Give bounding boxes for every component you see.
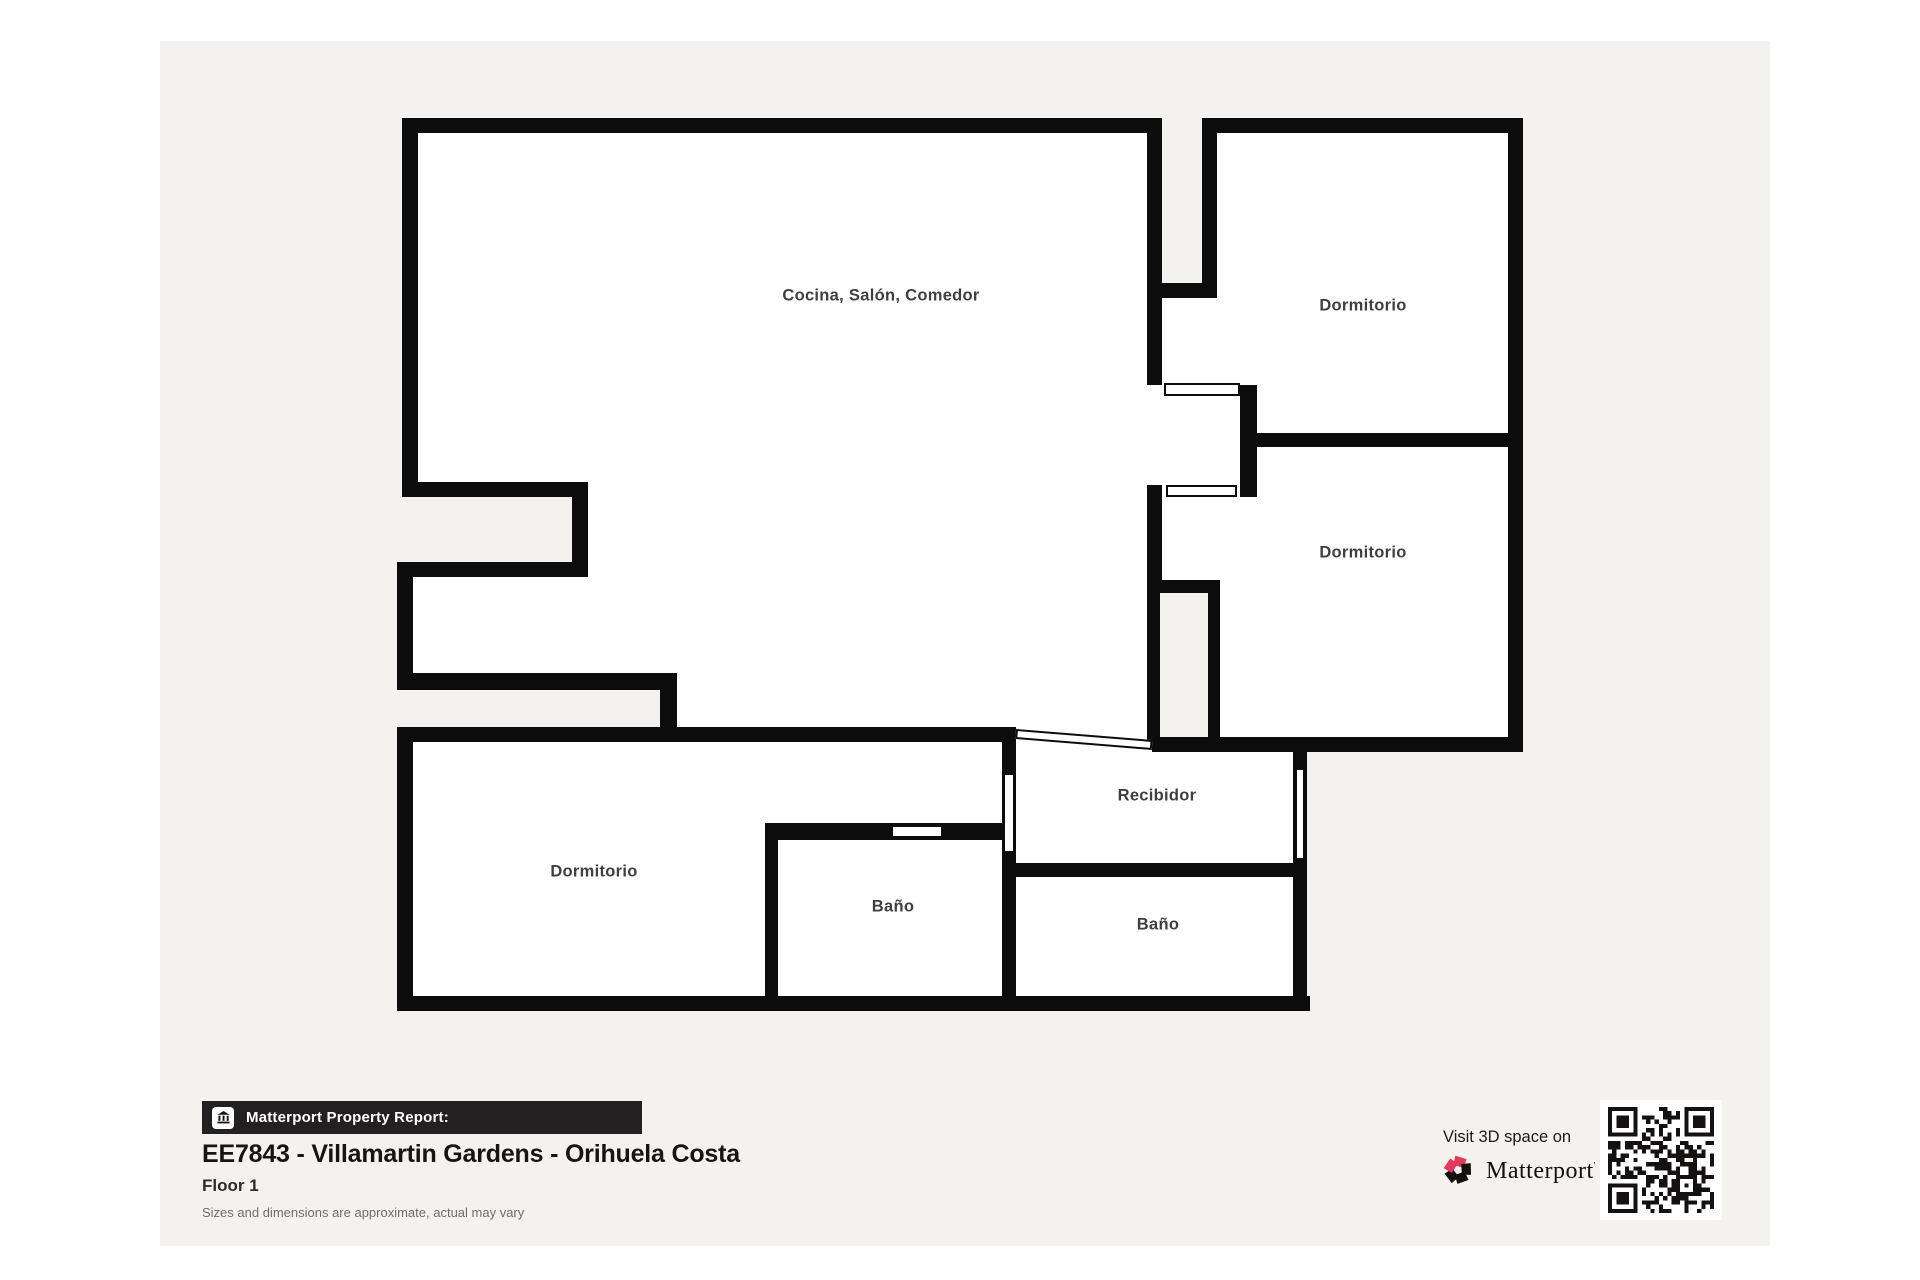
wall bbox=[1160, 283, 1217, 298]
exterior-shaft-mid bbox=[1158, 593, 1208, 738]
wall bbox=[402, 482, 588, 497]
floor-plan-sheet: Cocina, Salón, Comedor Dormitorio Dormit… bbox=[160, 41, 1770, 1246]
wall bbox=[1152, 737, 1523, 752]
room-label-bedroom-mid-right: Dormitorio bbox=[1319, 544, 1406, 563]
room-label-living: Cocina, Salón, Comedor bbox=[782, 287, 979, 306]
door-symbol bbox=[891, 825, 943, 838]
wall bbox=[397, 727, 413, 1011]
wall bbox=[1202, 118, 1523, 133]
window-symbol bbox=[1295, 768, 1305, 860]
wall bbox=[765, 823, 1007, 840]
wall bbox=[1147, 485, 1162, 593]
room-label-bedroom-bottom-left: Dormitorio bbox=[550, 863, 637, 882]
wall bbox=[765, 823, 778, 1011]
room-area-living bbox=[413, 133, 1162, 742]
wall bbox=[1202, 118, 1217, 283]
room-label-bath-right: Baño bbox=[1137, 916, 1179, 935]
room-area-hallway bbox=[1147, 385, 1240, 497]
exterior-gap-top bbox=[1162, 60, 1202, 283]
matterport-wordmark: Matterport' bbox=[1486, 1158, 1596, 1185]
wall bbox=[397, 562, 413, 690]
wall bbox=[1147, 133, 1162, 385]
floor-label: Floor 1 bbox=[202, 1176, 259, 1196]
brand-mark: ' bbox=[1594, 1161, 1596, 1172]
wall bbox=[402, 118, 1162, 133]
wall bbox=[1508, 118, 1523, 752]
report-bar-label: Matterport Property Report: bbox=[246, 1109, 449, 1126]
matterport-logo-icon bbox=[1441, 1153, 1475, 1187]
room-label-entry-hall: Recibidor bbox=[1118, 787, 1197, 806]
wall bbox=[1002, 863, 1307, 877]
page: Cocina, Salón, Comedor Dormitorio Dormit… bbox=[0, 0, 1920, 1280]
exterior-notch-left-lower bbox=[300, 690, 660, 727]
wall bbox=[397, 673, 677, 690]
house-icon bbox=[212, 1107, 234, 1129]
disclaimer-text: Sizes and dimensions are approximate, ac… bbox=[202, 1205, 524, 1220]
wall bbox=[402, 118, 418, 497]
wall bbox=[397, 996, 1310, 1011]
door-symbol bbox=[1003, 773, 1015, 853]
wall bbox=[397, 562, 588, 577]
qr-code bbox=[1600, 1100, 1722, 1220]
exterior-notch-left-upper bbox=[300, 497, 572, 562]
property-title: EE7843 - Villamartin Gardens - Orihuela … bbox=[202, 1140, 740, 1169]
visit-3d-text: Visit 3D space on bbox=[1443, 1128, 1571, 1147]
room-label-bath-left: Baño bbox=[872, 898, 914, 917]
wall bbox=[1250, 433, 1508, 447]
door-symbol bbox=[1166, 485, 1237, 497]
wall bbox=[1147, 593, 1160, 742]
room-label-bedroom-top-right: Dormitorio bbox=[1319, 297, 1406, 316]
wall bbox=[397, 727, 1016, 742]
report-bar: Matterport Property Report: bbox=[202, 1101, 642, 1134]
wall bbox=[1208, 580, 1220, 752]
door-symbol bbox=[1164, 383, 1240, 396]
